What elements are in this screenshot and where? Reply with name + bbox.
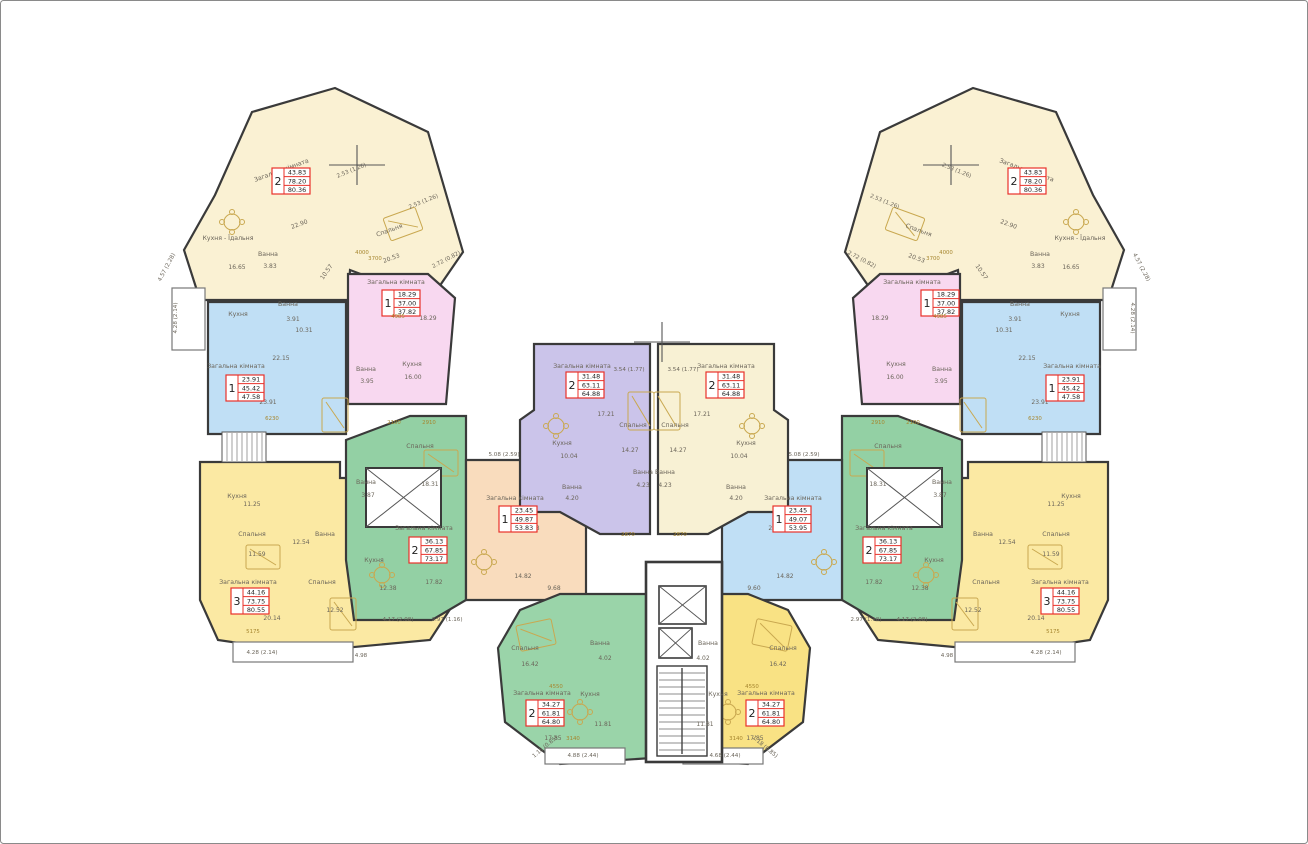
room-area-label: 3.83 [1031, 263, 1045, 270]
apartment-area-value: 80.36 [288, 186, 306, 194]
apartment-info-box: 236.1367.8573.17 [863, 537, 901, 563]
room-area-label: 10.04 [560, 453, 577, 460]
room-name-label: Кухня [1060, 311, 1080, 318]
apartment-area-value: 53.95 [789, 524, 807, 532]
room-area-label: 17.21 [693, 411, 710, 418]
room-area-label: 12.52 [326, 607, 343, 614]
room-area-label: 17.82 [865, 579, 882, 586]
apartment-info-box: 243.8378.2080.36 [272, 168, 310, 194]
apartment-room-count: 1 [776, 513, 783, 526]
room-area-label: 4.23 [658, 482, 672, 489]
apartment-room-count: 2 [866, 544, 873, 557]
balcony-area-label: 4.98 [941, 653, 954, 659]
balcony-area-label: 4.28 (2.14) [173, 302, 179, 333]
apartment-area-value: 49.87 [515, 515, 533, 523]
room-area-label: 18.31 [421, 481, 438, 488]
room-name-label: Загальна кімната [367, 278, 425, 286]
apartment-info-box: 123.4549.8753.83 [499, 506, 537, 532]
room-name-label: Кухня - Їдальня [203, 233, 254, 242]
room-area-label: 10.04 [730, 453, 747, 460]
apartment-room-count: 2 [1011, 175, 1018, 188]
room-name-label: Загальна кімната [1043, 362, 1101, 370]
room-area-label: 18.29 [871, 315, 888, 322]
apartment-area-value: 36.13 [879, 538, 897, 546]
room-name-label: Ванна [258, 251, 278, 258]
apartment-area-value: 37.00 [398, 299, 416, 307]
apartment-area-value: 63.11 [722, 381, 740, 389]
room-name-label: Ванна [562, 484, 582, 491]
room-area-label: 11.59 [1042, 551, 1059, 558]
apartment-area-value: 61.81 [762, 709, 780, 717]
room-name-label: Ванна [356, 479, 376, 486]
room-area-label: 3.95 [360, 378, 374, 385]
room-area-label: 3.83 [263, 263, 277, 270]
room-area-label: 10.31 [995, 327, 1012, 334]
apartment-area-value: 31.48 [722, 373, 740, 381]
room-area-label: 16.00 [886, 374, 903, 381]
floor-plan-page: Загальна кімната22.90Кухня - Їдальня16.6… [0, 0, 1308, 844]
room-area-label: 11.81 [594, 721, 611, 728]
apartment-info-box: 344.1673.7580.55 [1041, 588, 1079, 614]
room-name-label: Кухня - Їдальня [1055, 233, 1106, 242]
balcony-area-label: 4.68 (2.44) [709, 753, 740, 759]
room-name-label: Кухня [736, 440, 756, 447]
apartment-area-value: 63.11 [582, 381, 600, 389]
room-name-label: Кухня [228, 311, 248, 318]
apartment-area-value: 18.29 [937, 291, 955, 299]
room-name-label: Ванна [932, 479, 952, 486]
room-name-label: Кухня [552, 440, 572, 447]
room-area-label: 4.02 [598, 655, 612, 662]
apartment-area-value: 80.36 [1024, 186, 1042, 194]
room-name-label: Загальна кімната [219, 578, 277, 586]
balcony-area-label: 5.08 (2.59) [788, 452, 819, 458]
room-area-label: 16.42 [769, 661, 786, 668]
room-area-label: 3.95 [934, 378, 948, 385]
room-name-label: Ванна [590, 640, 610, 647]
apartment-info-box: 118.2937.0037.82 [921, 290, 959, 316]
apartment-area-value: 23.91 [1062, 376, 1080, 384]
room-name-label: Загальна кімната [513, 689, 571, 697]
apartment-area-value: 31.48 [582, 373, 600, 381]
room-name-label: Ванна [315, 531, 335, 538]
room-area-label: 4.20 [729, 495, 743, 502]
corridor-stairs-icon [222, 432, 266, 462]
apartment-info-box: 231.4863.1164.88 [566, 372, 604, 398]
apartment-room-count: 2 [529, 707, 536, 720]
room-area-label: 3.87 [361, 492, 375, 499]
apartment-area-value: 67.85 [425, 546, 443, 554]
room-area-label: 11.25 [243, 501, 260, 508]
room-name-label: Кухня [924, 557, 944, 564]
room-area-label: 14.27 [669, 447, 686, 454]
room-name-label: Спальня [406, 443, 434, 450]
room-name-label: Спальня [511, 645, 539, 652]
dimension-label: 3700 [926, 256, 940, 262]
floor-plan: Загальна кімната22.90Кухня - Їдальня16.6… [0, 0, 1308, 844]
room-area-label: 4.20 [565, 495, 579, 502]
room-name-label: Спальня [238, 531, 266, 538]
room-name-label: Ванна [1030, 251, 1050, 258]
room-name-label: Ванна [655, 469, 675, 476]
room-name-label: Кухня [886, 361, 906, 368]
apartment-info-box: 243.8378.2080.36 [1008, 168, 1046, 194]
room-name-label: Спальня [769, 645, 797, 652]
balcony-area-label: 3.54 (1.77) [667, 367, 698, 373]
room-name-label: Загальна кімната [737, 689, 795, 697]
dimension-label: 2870 [673, 532, 687, 538]
apartment-area-value: 64.80 [542, 718, 560, 726]
apartment-info-box: 344.1673.7580.55 [231, 588, 269, 614]
room-area-label: 14.27 [621, 447, 638, 454]
apartment-info-box: 236.1367.8573.17 [409, 537, 447, 563]
apartment-room-count: 3 [234, 595, 241, 608]
room-name-label: Спальня [308, 579, 336, 586]
apartment-area-value: 43.83 [1024, 169, 1042, 177]
room-name-label: Кухня [708, 691, 728, 698]
room-area-label: 14.82 [514, 573, 531, 580]
apartment-area-value: 23.45 [789, 507, 807, 515]
apartment-info-box: 231.4863.1164.88 [706, 372, 744, 398]
dimension-label: 4985 [391, 314, 405, 320]
balcony-area-label: 4.17 (2.08) [896, 617, 927, 623]
dimension-label: 4000 [939, 250, 953, 256]
balcony-area-label: 4.28 (2.14) [246, 650, 277, 656]
room-name-label: Загальна кімната [207, 362, 265, 370]
dimension-label: 5175 [246, 629, 260, 635]
room-area-label: 22.15 [1018, 355, 1035, 362]
apartment-room-count: 1 [229, 382, 236, 395]
apartment-area-value: 23.91 [242, 376, 260, 384]
room-area-label: 11.81 [696, 721, 713, 728]
room-name-label: Загальна кімната [855, 524, 913, 532]
light-shaft [366, 468, 441, 527]
room-name-label: Спальня [619, 422, 647, 429]
room-area-label: 18.31 [869, 481, 886, 488]
room-area-label: 12.54 [292, 539, 309, 546]
room-area-label: 18.29 [419, 315, 436, 322]
room-name-label: Загальна кімната [1031, 578, 1089, 586]
room-name-label: Кухня [364, 557, 384, 564]
apartment-room-count: 1 [385, 297, 392, 310]
room-area-label: 3.91 [286, 316, 300, 323]
room-area-label: 14.82 [776, 573, 793, 580]
room-name-label: Спальня [874, 443, 902, 450]
room-name-label: Ванна [278, 301, 298, 308]
apartment-area-value: 44.16 [1057, 589, 1075, 597]
apartment-area-value: 61.81 [542, 709, 560, 717]
apartment-info-box: 123.9145.4247.58 [226, 375, 264, 401]
balcony-area-label: 3.54 (1.77) [613, 367, 644, 373]
corridor-stairs-icon [1042, 432, 1086, 462]
apartment-room-count: 3 [1044, 595, 1051, 608]
room-name-label: Загальна кімната [883, 278, 941, 286]
dimension-label: 5175 [1046, 629, 1060, 635]
apartment-area-value: 36.13 [425, 538, 443, 546]
apartment-area-value: 37.00 [937, 299, 955, 307]
dimension-label: 3140 [729, 736, 743, 742]
apartment-area-value: 73.75 [247, 597, 265, 605]
apartment-area-value: 47.58 [1062, 393, 1080, 401]
light-shaft [867, 468, 942, 527]
room-name-label: Кухня [580, 691, 600, 698]
room-name-label: Загальна кімната [764, 494, 822, 502]
room-name-label: Ванна [698, 640, 718, 647]
room-area-label: 9.60 [747, 585, 761, 592]
balcony-area-label: 2.97 (1.16) [431, 617, 462, 623]
apartment-area-value: 78.20 [288, 177, 306, 185]
apartment-area-value: 80.55 [247, 606, 265, 614]
dimension-label: 2910 [422, 420, 436, 426]
apartment-area-value: 78.20 [1024, 177, 1042, 185]
apartment-area-value: 73.17 [879, 555, 897, 563]
apartment-area-value: 80.55 [1057, 606, 1075, 614]
dimension-label: 4550 [549, 684, 563, 690]
apartment-info-box: 234.2761.8164.80 [526, 700, 564, 726]
apartment-area-value: 73.17 [425, 555, 443, 563]
dimension-label: 6230 [1028, 416, 1042, 422]
room-area-label: 12.38 [911, 585, 928, 592]
central-core [646, 562, 722, 762]
room-area-label: 16.42 [521, 661, 538, 668]
balcony-area-label: 4.28 (2.14) [1030, 650, 1061, 656]
room-name-label: Ванна [932, 366, 952, 373]
balcony-area-label: 2.97 (1.18) [850, 617, 881, 623]
apartment-info-box: 123.9145.4247.58 [1046, 375, 1084, 401]
room-name-label: Загальна кімната [697, 362, 755, 370]
floor-plan-drawing: Загальна кімната22.90Кухня - Їдальня16.6… [0, 0, 1308, 844]
apartment-area-value: 47.58 [242, 393, 260, 401]
room-area-label: 20.14 [1027, 615, 1044, 622]
room-area-label: 10.31 [295, 327, 312, 334]
balcony-area-label: 5.08 (2.59) [488, 452, 519, 458]
room-area-label: 20.14 [263, 615, 280, 622]
room-area-label: 3.87 [933, 492, 947, 499]
room-area-label: 9.68 [547, 585, 561, 592]
room-name-label: Спальня [661, 422, 689, 429]
room-area-label: 16.65 [1062, 264, 1079, 271]
apartment-area-value: 53.83 [515, 524, 533, 532]
room-area-label: 3.91 [1008, 316, 1022, 323]
room-name-label: Кухня [227, 493, 247, 500]
room-area-label: 4.02 [696, 655, 710, 662]
apartment-room-count: 1 [924, 297, 931, 310]
room-area-label: 11.59 [248, 551, 265, 558]
apartment-area-value: 23.45 [515, 507, 533, 515]
room-area-label: 4.23 [636, 482, 650, 489]
apartment-room-count: 2 [749, 707, 756, 720]
apartment-area-value: 64.80 [762, 718, 780, 726]
apartment-info-box: 118.2937.0037.82 [382, 290, 420, 316]
room-name-label: Ванна [356, 366, 376, 373]
dimension-label: 4550 [745, 684, 759, 690]
apartment-room-count: 2 [569, 379, 576, 392]
stairs-outline [222, 432, 266, 462]
dimension-label: 2910 [871, 420, 885, 426]
room-name-label: Спальня [972, 579, 1000, 586]
apartment-room-count: 1 [502, 513, 509, 526]
apartment-room-count: 2 [275, 175, 282, 188]
balcony-area-label: 4.28 (2.14) [1129, 302, 1135, 333]
apartment-area-value: 34.27 [542, 701, 560, 709]
dimension-label: 2100 [387, 420, 401, 426]
apartment-area-value: 73.75 [1057, 597, 1075, 605]
room-name-label: Ванна [633, 469, 653, 476]
apartment-area-value: 44.16 [247, 589, 265, 597]
dimension-label: 3700 [368, 256, 382, 262]
apartment-area-value: 34.27 [762, 701, 780, 709]
room-area-label: 16.00 [404, 374, 421, 381]
room-name-label: Кухня [1061, 493, 1081, 500]
dimension-label: 4000 [355, 250, 369, 256]
room-name-label: Ванна [1010, 301, 1030, 308]
room-area-label: 17.21 [597, 411, 614, 418]
apartment-area-value: 64.88 [722, 390, 740, 398]
room-name-label: Ванна [726, 484, 746, 491]
room-area-label: 12.38 [379, 585, 396, 592]
apartment-info-box: 123.4549.0753.95 [773, 506, 811, 532]
room-name-label: Спальня [1042, 531, 1070, 538]
apartment-room-count: 2 [412, 544, 419, 557]
dimension-label: 2100 [906, 420, 920, 426]
apartment-area-value: 45.42 [242, 384, 260, 392]
apartment-area-value: 18.29 [398, 291, 416, 299]
room-area-label: 17.82 [425, 579, 442, 586]
dimension-label: 6230 [265, 416, 279, 422]
apartment-area-value: 64.88 [582, 390, 600, 398]
apartment-area-value: 67.85 [879, 546, 897, 554]
balcony-area-label: 4.98 [355, 653, 368, 659]
apartment-area-value: 45.42 [1062, 384, 1080, 392]
apartment-info-box: 234.2761.8164.80 [746, 700, 784, 726]
dimension-label: 2870 [621, 532, 635, 538]
room-name-label: Загальна кімната [395, 524, 453, 532]
stairs-outline [1042, 432, 1086, 462]
room-area-label: 12.52 [964, 607, 981, 614]
room-area-label: 16.65 [228, 264, 245, 271]
room-name-label: Загальна кімната [486, 494, 544, 502]
room-area-label: 12.54 [998, 539, 1015, 546]
apartment-room-count: 2 [709, 379, 716, 392]
apartment-area-value: 43.83 [288, 169, 306, 177]
room-area-label: 11.25 [1047, 501, 1064, 508]
room-name-label: Кухня [402, 361, 422, 368]
balcony-area-label: 4.88 (2.44) [567, 753, 598, 759]
balcony-area-label: 4.17 (2.08) [382, 617, 413, 623]
apartment-area-value: 49.07 [789, 515, 807, 523]
apartment-room-count: 1 [1049, 382, 1056, 395]
dimension-label: 3140 [566, 736, 580, 742]
room-area-label: 22.15 [272, 355, 289, 362]
dimension-label: 4985 [933, 314, 947, 320]
room-name-label: Загальна кімната [553, 362, 611, 370]
room-name-label: Ванна [973, 531, 993, 538]
